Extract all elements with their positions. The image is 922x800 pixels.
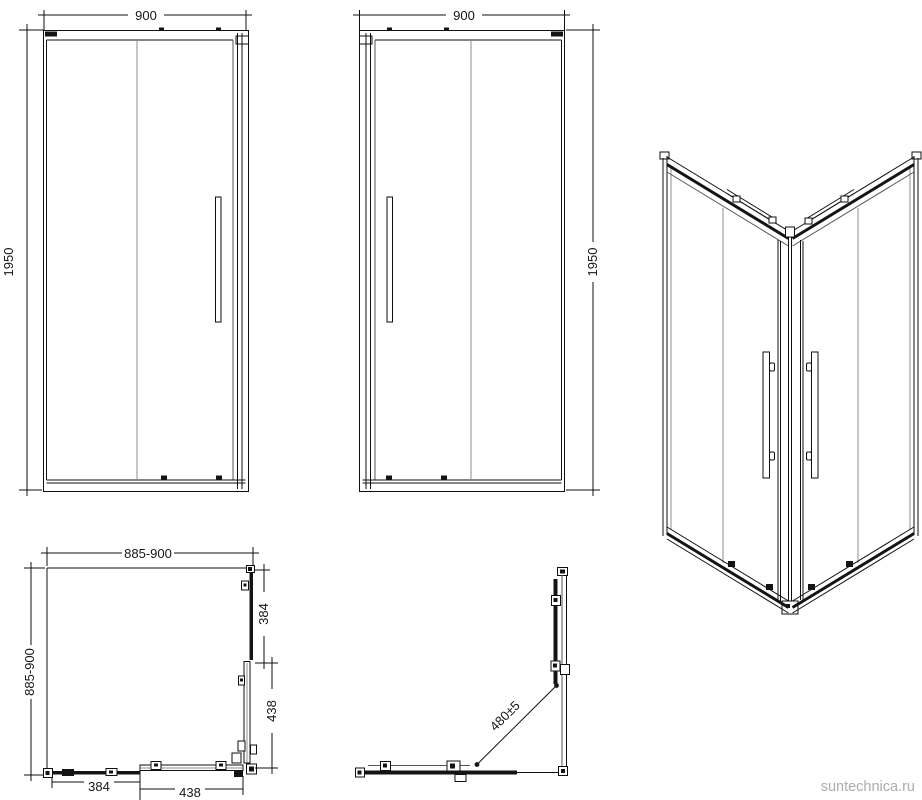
door-handle-right-iso — [807, 352, 819, 478]
dim-side-door: 438 — [255, 657, 280, 774]
roller — [846, 561, 853, 567]
door-edge-profile — [232, 753, 241, 763]
hanger-clip — [841, 196, 848, 202]
bottom-rail-left — [667, 527, 789, 613]
top-rail-right — [793, 157, 915, 246]
dim-label-side-door: 438 — [264, 700, 279, 722]
technical-drawing-sheet: 900 1950 — [0, 0, 922, 800]
roller — [808, 584, 815, 590]
front-view-left: 900 1950 — [1, 8, 252, 496]
dim-opening: 480±5 — [475, 683, 559, 767]
handle-knob — [770, 363, 775, 371]
panel-clip — [561, 665, 570, 675]
hanger-bracket — [159, 28, 164, 32]
hanger-clip — [769, 217, 776, 223]
hanger-bracket — [387, 28, 392, 32]
dim-height-left-view: 1950 — [1, 24, 44, 496]
handle-knob — [807, 452, 812, 460]
dim-label-height: 1950 — [585, 248, 600, 277]
roller — [386, 476, 392, 481]
dim-label-width: 900 — [453, 8, 475, 23]
hanger-clip — [733, 196, 740, 202]
door-frame-right-view — [360, 28, 565, 492]
bottom-rail-right — [793, 527, 915, 613]
plan-view-closed: 885-900 885-900 — [22, 546, 280, 800]
plan-bottom-assembly — [44, 753, 244, 778]
hanger-clip — [805, 218, 812, 224]
dim-label-width: 900 — [135, 8, 157, 23]
dim-label-plan-depth: 885-900 — [22, 648, 37, 696]
door-frame-left-view — [44, 28, 249, 492]
right-wall-post — [910, 152, 921, 536]
door-handle — [216, 197, 222, 322]
sliding-panel — [364, 771, 517, 775]
dim-label-plan-width: 885-900 — [124, 546, 172, 561]
open-vertical-wing — [551, 568, 570, 773]
dim-label-height: 1950 — [1, 248, 16, 277]
dim-bottom-door: 438 — [140, 776, 243, 800]
roller — [728, 561, 735, 567]
door-handle — [387, 197, 393, 322]
roller — [216, 476, 222, 481]
dim-label-bottom-fixed: 384 — [88, 779, 110, 794]
panel-clip — [455, 775, 466, 782]
hanger-bracket — [444, 28, 449, 32]
door-handle-left-iso — [763, 352, 775, 478]
watermark: suntechnica.ru — [821, 779, 915, 795]
dim-width-right-view: 900 — [353, 8, 570, 31]
roller — [161, 476, 167, 481]
dim-plan-width: 885-900 — [41, 546, 259, 566]
plan-right-assembly — [238, 566, 257, 775]
handle-knob — [807, 363, 812, 371]
roller — [766, 584, 773, 590]
dim-label-bottom-door: 438 — [179, 785, 201, 800]
open-horizontal-wing — [356, 761, 568, 782]
panel-clip — [251, 745, 257, 754]
left-wall-post — [660, 152, 671, 536]
handle-knob — [770, 452, 775, 460]
panel-clip — [238, 741, 245, 751]
hanger-bracket — [216, 28, 221, 32]
panel-clip — [62, 769, 74, 776]
corner-post — [782, 227, 798, 614]
dim-label-opening: 480±5 — [487, 698, 523, 734]
drawing-canvas: 900 1950 — [0, 0, 922, 800]
top-rail-end-cap — [45, 32, 57, 37]
dim-height-right-view: 1950 — [566, 24, 600, 496]
top-rail-left — [667, 157, 789, 246]
dim-plan-depth: 885-900 — [22, 562, 45, 781]
front-view-right: 900 1950 — [353, 8, 600, 496]
dim-label-side-fixed: 384 — [256, 603, 271, 625]
isometric-view — [660, 152, 921, 614]
door-edge-right — [801, 240, 804, 601]
door-edge-left — [778, 240, 781, 601]
plan-view-open: 480±5 — [356, 568, 570, 782]
roller — [441, 476, 447, 481]
dim-side-fixed: 384 — [255, 564, 278, 669]
fixed-panel — [250, 572, 254, 660]
top-rail-end-cap — [551, 32, 563, 37]
